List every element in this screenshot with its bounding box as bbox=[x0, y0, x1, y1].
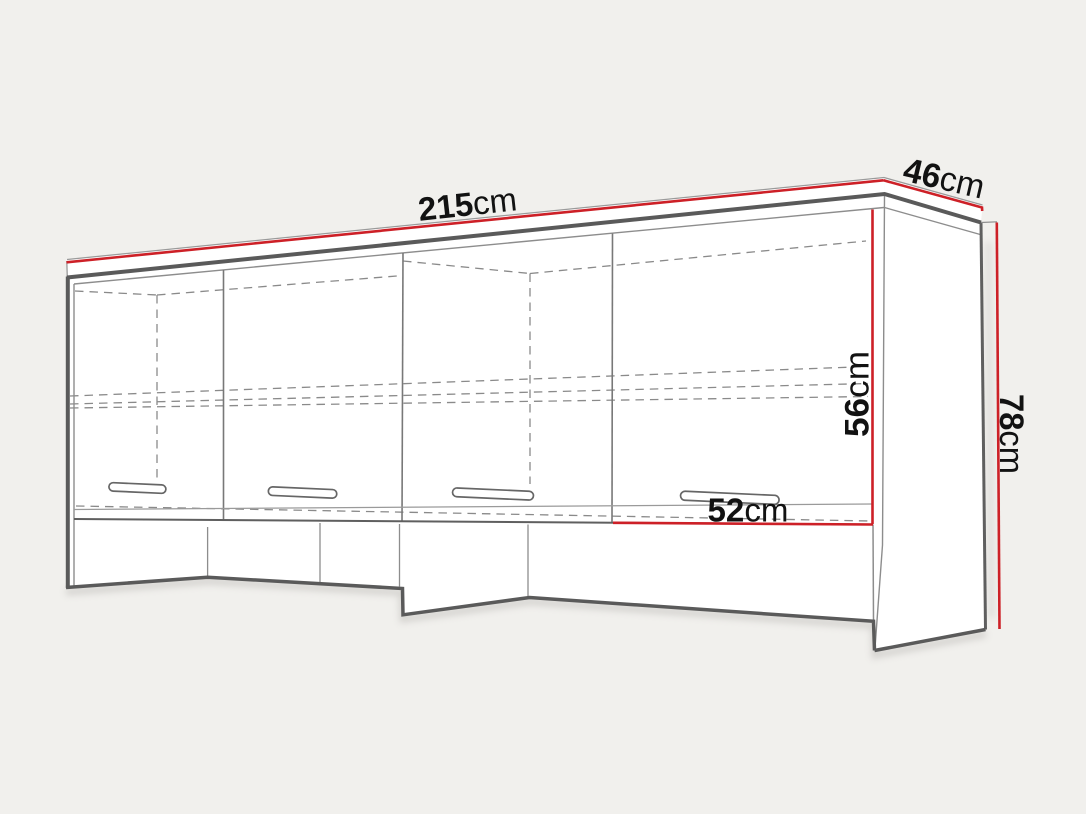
svg-text:78cm: 78cm bbox=[992, 394, 1030, 474]
svg-text:56cm: 56cm bbox=[839, 351, 877, 437]
svg-text:52cm: 52cm bbox=[708, 492, 789, 529]
